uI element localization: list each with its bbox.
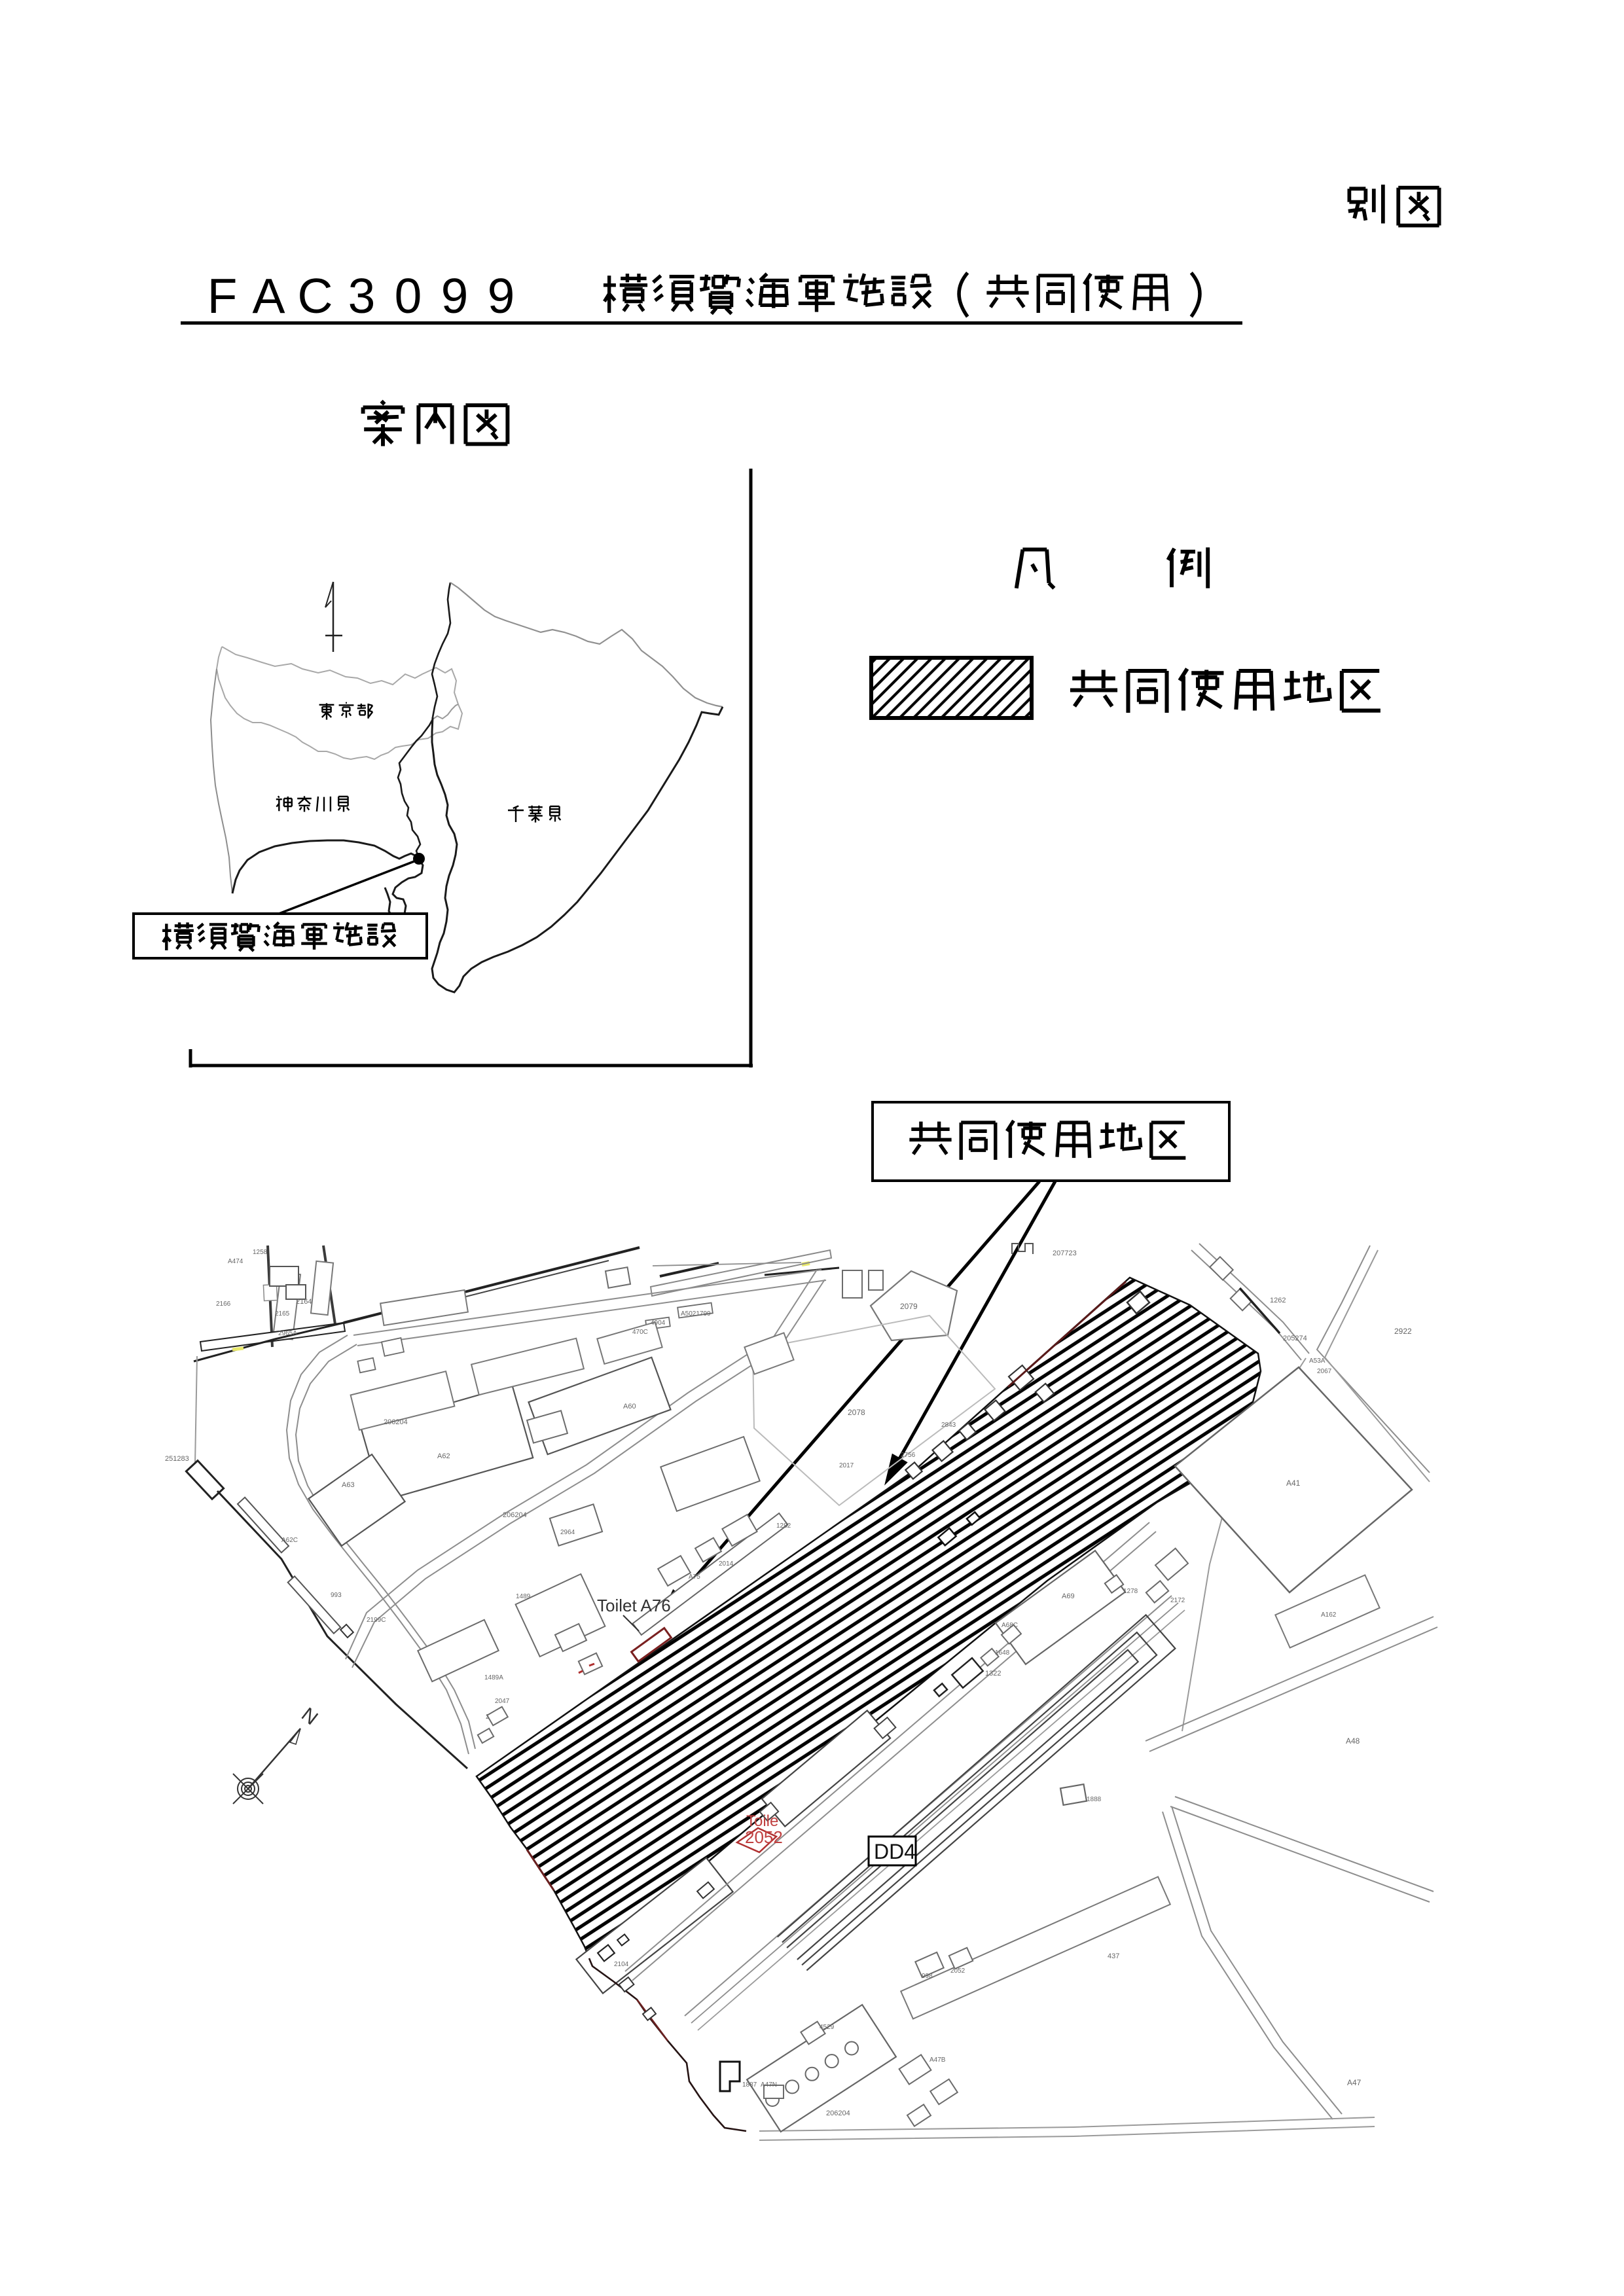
svg-text:206204: 206204 bbox=[503, 1511, 527, 1519]
svg-text:1887: 1887 bbox=[742, 2081, 757, 2089]
svg-text:993: 993 bbox=[331, 1592, 342, 1599]
svg-text:1489A: 1489A bbox=[484, 1674, 503, 1681]
svg-text:470C: 470C bbox=[632, 1329, 648, 1336]
svg-text:A5021799: A5021799 bbox=[681, 1310, 711, 1318]
svg-text:1282: 1282 bbox=[776, 1522, 791, 1530]
svg-text:437: 437 bbox=[1108, 1952, 1119, 1960]
svg-text:1262: 1262 bbox=[1270, 1297, 1286, 1304]
svg-text:0: 0 bbox=[395, 268, 422, 323]
svg-text:A69: A69 bbox=[1062, 1592, 1075, 1600]
svg-text:1258: 1258 bbox=[253, 1249, 268, 1256]
svg-text:A47N: A47N bbox=[761, 2081, 777, 2089]
svg-text:1489: 1489 bbox=[516, 1593, 531, 1600]
svg-text:DD4: DD4 bbox=[874, 1840, 916, 1863]
svg-text:A53A: A53A bbox=[1309, 1357, 1326, 1365]
svg-text:2079: 2079 bbox=[900, 1302, 918, 1311]
svg-text:2052: 2052 bbox=[745, 1827, 783, 1847]
svg-text:A75: A75 bbox=[689, 1573, 700, 1581]
svg-text:A474: A474 bbox=[228, 1258, 244, 1265]
svg-text:2052: 2052 bbox=[950, 1967, 965, 1975]
svg-text:1278: 1278 bbox=[1123, 1588, 1138, 1595]
svg-text:A47: A47 bbox=[1347, 2078, 1362, 2087]
svg-text:2165: 2165 bbox=[275, 1310, 290, 1318]
svg-text:251283: 251283 bbox=[165, 1455, 189, 1463]
svg-text:206204: 206204 bbox=[384, 1418, 408, 1426]
svg-text:2922: 2922 bbox=[1394, 1327, 1412, 1336]
svg-text:A41: A41 bbox=[1286, 1479, 1301, 1488]
svg-text:206204: 206204 bbox=[826, 2109, 850, 2117]
svg-text:2166: 2166 bbox=[216, 1300, 231, 1308]
svg-text:A62C: A62C bbox=[281, 1537, 298, 1544]
svg-text:A: A bbox=[252, 268, 285, 323]
svg-text:998: 998 bbox=[922, 1973, 933, 1980]
svg-text:2067: 2067 bbox=[1317, 1368, 1332, 1375]
svg-text:2199C: 2199C bbox=[367, 1617, 386, 1624]
svg-text:9: 9 bbox=[441, 268, 469, 323]
svg-text:A48: A48 bbox=[1346, 1736, 1360, 1746]
svg-text:A62: A62 bbox=[437, 1452, 450, 1460]
svg-text:F: F bbox=[208, 268, 238, 323]
svg-text:4904: 4904 bbox=[651, 1319, 666, 1327]
svg-text:A63: A63 bbox=[342, 1481, 355, 1489]
svg-text:2017: 2017 bbox=[839, 1462, 854, 1469]
svg-text:9: 9 bbox=[488, 268, 515, 323]
svg-text:2756: 2756 bbox=[901, 1452, 916, 1459]
svg-text:3: 3 bbox=[348, 268, 376, 323]
svg-text:1322: 1322 bbox=[985, 1670, 1001, 1677]
svg-text:A60: A60 bbox=[623, 1403, 636, 1410]
svg-text:2843: 2843 bbox=[941, 1422, 956, 1429]
svg-text:2104: 2104 bbox=[614, 1961, 629, 1968]
svg-text:2047: 2047 bbox=[495, 1698, 510, 1705]
svg-text:2014: 2014 bbox=[719, 1560, 734, 1568]
svg-text:2965A: 2965A bbox=[278, 1330, 297, 1337]
svg-text:Toilet A76: Toilet A76 bbox=[597, 1596, 671, 1615]
svg-text:A162: A162 bbox=[1321, 1611, 1337, 1619]
svg-text:4529: 4529 bbox=[820, 2024, 835, 2031]
svg-text:A68C: A68C bbox=[1001, 1622, 1018, 1629]
svg-text:2172: 2172 bbox=[1170, 1597, 1185, 1604]
svg-text:2964: 2964 bbox=[560, 1529, 575, 1536]
svg-text:205274: 205274 bbox=[1283, 1335, 1307, 1342]
svg-text:2078: 2078 bbox=[848, 1408, 865, 1417]
svg-text:207723: 207723 bbox=[1053, 1249, 1077, 1257]
svg-text:2164: 2164 bbox=[296, 1298, 312, 1306]
svg-text:1888: 1888 bbox=[1087, 1796, 1102, 1803]
svg-text:1648: 1648 bbox=[995, 1649, 1010, 1657]
svg-text:C: C bbox=[297, 268, 333, 323]
svg-text:A47B: A47B bbox=[929, 2056, 946, 2064]
